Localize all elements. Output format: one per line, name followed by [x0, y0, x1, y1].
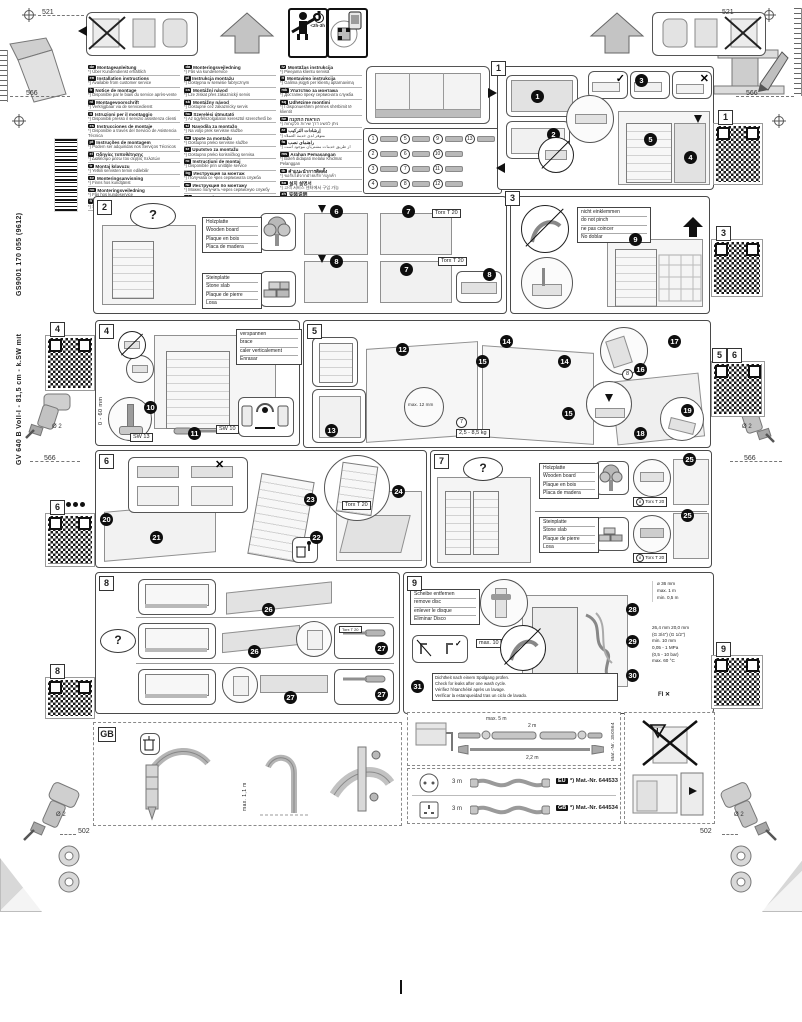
part-item: 2 — [368, 149, 400, 159]
question-cloud: ? — [100, 629, 136, 653]
language-list-col1: deMontageanleitung*) Über Kundendienst e… — [88, 64, 180, 211]
registration-crosshair — [772, 114, 786, 128]
language-note: *) Dostępna w serwisie fabrycznym — [184, 81, 276, 86]
step-dot — [66, 502, 71, 507]
part-item: 3 — [368, 164, 400, 174]
language-entry: daMonteringsvejledning*) Fås via kundese… — [184, 64, 276, 76]
part-item: 6 — [400, 149, 432, 159]
step-3: 3 — [635, 74, 648, 87]
decor-door-mount-sketch — [631, 769, 707, 819]
brace-label: verspannenbracecaler verticalementEnrasa… — [236, 329, 302, 365]
language-note: *) Na voljo prek servisne službe — [184, 129, 276, 134]
check-icon: ✓ — [616, 72, 625, 85]
rcd-label: FI ✕ — [658, 691, 670, 698]
part-number: 9 — [433, 134, 443, 144]
region-badge-eu: EU — [556, 778, 568, 784]
language-note: *) ניתן להשיג דרך שירות הלקוחות — [280, 122, 362, 127]
step-12: 12 — [396, 343, 409, 356]
height-range: 0 - 60 mm — [98, 379, 104, 425]
step-11: 11 — [188, 427, 201, 440]
language-list-col2: daMonteringsvejledning*) Fås via kundese… — [184, 64, 276, 218]
part-number: 13 — [465, 134, 475, 144]
panel-3: 3 nicht einklemmendo not pinchne pas coi… — [510, 196, 710, 314]
step-15: 15 — [476, 355, 489, 368]
language-entry: elΟδηγίες τοποθέτησης*) Διαθέσιμο μέσω τ… — [88, 152, 180, 164]
drill-dia-bottom-right: Ø 2 — [734, 812, 744, 818]
qr-label-8: 8 — [50, 664, 65, 679]
gb-hose-height: max. 1,1 m — [242, 759, 248, 811]
panel-1: 1 1 2 ✓ 3 ✕ 5 4 ! — [497, 66, 714, 190]
part-item: 13 — [465, 134, 497, 144]
part-hardware-icon — [380, 136, 398, 142]
step-22: 22 — [310, 531, 323, 544]
stone-slab-label: SteinplatteStone slabPlaque de pierreLos… — [202, 273, 262, 309]
installer-time-box: <2h-3h — [288, 8, 328, 58]
torx-tag: Torx T 20 — [342, 501, 371, 510]
cross-icon: ✕ — [215, 458, 224, 471]
step-15b: 15 — [562, 407, 575, 420]
gb-label: GB — [98, 727, 116, 742]
part-number: 2 — [368, 149, 378, 159]
stone-icon-box — [260, 271, 296, 307]
part-item: 12 — [433, 179, 465, 189]
step-16: 16 — [634, 363, 647, 376]
part-number: 1 — [368, 134, 378, 144]
hose-clip-pipe-sketch — [330, 739, 394, 821]
dimension-502-left: 502 — [78, 828, 90, 835]
language-note: *) Az ügyfélszolgálaton keresztül szerez… — [184, 117, 276, 122]
part-item: 4 — [368, 179, 400, 189]
language-entry: svMonteringsanvisning*) Finns hos kundtj… — [88, 175, 180, 187]
dimension-502-right: 502 — [700, 828, 712, 835]
step-27: 27 — [375, 642, 388, 655]
qr-label-3: 3 — [716, 226, 731, 241]
language-note: *) Достапно преку сервисната служба — [280, 93, 362, 98]
language-entry: srUputstvo za montažu*) Dostupno preko k… — [184, 147, 276, 159]
qr-label-6b: 6 — [727, 348, 742, 363]
language-entry: ptInstruções de montagem*) Podem ser adq… — [88, 140, 180, 152]
language-note: *) Disponible par le biais du service ap… — [88, 93, 180, 98]
language-note: *) ขอรับได้จากฝ่ายบริการลูกค้า — [280, 174, 362, 179]
crossed-warning-sketch: ! — [635, 719, 701, 767]
leak-check-box: 31 Dichtheit nach einem Spülgang prüfen.… — [432, 673, 618, 701]
qr-code-5-6 — [712, 362, 764, 416]
language-entry: arإرشادات التركيب*) متوفر لدى خدمة العمل… — [280, 128, 362, 140]
tree-icon — [261, 214, 293, 248]
cabinet-front-preview — [366, 66, 490, 124]
qr-code-3 — [712, 240, 762, 296]
part-number: 4 — [368, 179, 378, 189]
language-entry: huSzerelési útmutató*) Az ügyfélszolgála… — [184, 111, 276, 123]
language-note: *) Available from customer service — [88, 81, 180, 86]
cord2-mat-nr: *) Mat.-Nr. 644534 — [570, 805, 618, 811]
registration-tick — [400, 980, 402, 994]
bracket-compare-box: ✕ — [128, 457, 248, 513]
dimension-566-left: 566 — [26, 90, 38, 97]
part-item: 11 — [433, 164, 465, 174]
language-entry: hrUpute za montažu*) Dostupno preko serv… — [184, 135, 276, 147]
step-6: 6 — [330, 205, 343, 218]
language-note: *) Можно получить через сервисную службу — [184, 188, 276, 193]
step-26: 26 — [262, 603, 275, 616]
language-note: *) Podem ser adquiridas nos Serviços Téc… — [88, 145, 180, 150]
region-badge-gb: GB — [556, 805, 568, 811]
cord1-mat-nr: *) Mat.-Nr. 644533 — [570, 778, 618, 784]
language-entry: nlMontagevoorschrift*) Verkrijgbaar via … — [88, 100, 180, 112]
question-cloud: ? — [463, 457, 503, 481]
remove-disc-label: Scheibe entfernenremove discenlever le d… — [410, 589, 480, 625]
power-cord-sketch — [470, 800, 550, 820]
arrow-up-icon — [588, 10, 646, 56]
step-30: 30 — [626, 669, 639, 682]
step-26b: 26 — [248, 645, 261, 658]
part-hardware-icon — [445, 181, 463, 187]
power-cord-sketch — [470, 773, 550, 793]
spirit-level-phone-icon — [239, 398, 291, 434]
torx-part-tag: 8 Torx T 20 — [633, 497, 667, 507]
part-hardware-icon — [412, 166, 430, 172]
schuko-socket-icon — [418, 773, 440, 793]
language-entry: skMontážny návod*) Dostupné cez zákazníc… — [184, 100, 276, 112]
qr-label-5: 5 — [712, 348, 727, 363]
part-hardware-icon — [445, 151, 463, 157]
part-hardware-icon — [445, 136, 463, 142]
part-item: 9 — [433, 134, 465, 144]
language-entry: faراهنمای نصب*) از طریق خدمات مشتریان مو… — [280, 140, 362, 152]
timer-icon — [313, 11, 325, 23]
parts-list: 12345678910111213 — [363, 128, 502, 194]
language-note: *) Disponible a través del Servicio de A… — [88, 129, 180, 138]
svg-text:✓: ✓ — [455, 639, 462, 648]
part-hardware-icon — [412, 136, 430, 142]
language-note: *) Yetkili servisten temin edilebilir — [88, 169, 180, 174]
step-1: 1 — [531, 90, 544, 103]
step-9: 9 — [629, 233, 642, 246]
language-note: *) Fås via kundeservice — [184, 70, 276, 75]
hose-couplers-sketch — [458, 729, 604, 741]
part-number: 8 — [400, 179, 410, 189]
page-curl — [0, 858, 42, 912]
step-dot — [73, 502, 78, 507]
dimension-566-left-mid: 566 — [44, 455, 56, 462]
panel-2-label: 2 — [97, 200, 112, 215]
step-7: 7 — [402, 205, 415, 218]
language-note: *) متوفر لدى خدمة العملاء — [280, 134, 362, 139]
language-entry: enInstallation instructions*) Available … — [88, 76, 180, 88]
qr-code-8 — [46, 678, 94, 718]
tap-open-closed-icon: ✓ — [413, 636, 465, 660]
part-hardware-icon — [380, 166, 398, 172]
part-hardware-icon — [380, 151, 398, 157]
part-ref-8: 8 — [622, 369, 633, 380]
question-cloud: ? — [130, 203, 176, 229]
tree-icon — [596, 462, 626, 492]
step-8b: 8 — [483, 268, 496, 281]
time-estimate: <2h-3h — [310, 23, 325, 28]
drain-hose-extension-box: max. 5 m 2 m 2,2 m Mat.-Nr. 350564 — [407, 712, 621, 766]
qr-label-6: 6 — [50, 500, 65, 515]
part-hardware-icon — [477, 136, 495, 142]
language-note: *) Finns hos kundtjänst — [88, 181, 180, 186]
language-entry: lvMontāžas instrukcija*) Pieejama klient… — [280, 64, 362, 76]
gap-dim: max. 12 mm — [408, 402, 433, 407]
hoses-cables-sketch — [580, 609, 620, 683]
hose-len2-dim: 2,2 m — [526, 755, 539, 761]
language-note: *) Dostupno preko korisničkog servisa — [184, 153, 276, 158]
step-27b: 27 — [284, 691, 297, 704]
phone-qr-scan-box — [327, 8, 368, 58]
tap-check-box: ✓ — [412, 635, 468, 663]
panel-9: 9 Scheibe entfernenremove discenlever le… — [403, 572, 714, 714]
hose-long-sketch — [458, 745, 604, 755]
drill-dia-left-mid: Ø 2 — [52, 424, 62, 430]
part-number: 3 — [368, 164, 378, 174]
panel-7-label: 7 — [434, 454, 449, 469]
pliers-cut-sketch — [124, 737, 214, 821]
trash-icon — [141, 734, 157, 752]
panel-8-label: 8 — [99, 576, 114, 591]
gb-tap-panel: GB max. 1,1 m — [93, 722, 402, 826]
language-entry: msArahan Pemasangan*) Boleh didapati mel… — [280, 152, 362, 169]
hinge-rings-icon — [724, 844, 758, 896]
part-item: 7 — [400, 164, 432, 174]
no-door-panel-warning-box — [86, 12, 198, 56]
language-note: *) از طریق خدمات مشتریان موجود است — [280, 145, 362, 150]
qr-code-9 — [712, 656, 762, 708]
language-entry: thคำแนะนำการติดตั้ง*) ขอรับได้จากฝ่ายบริ… — [280, 168, 362, 180]
language-note: *) Pieejama klientu servisā — [280, 70, 362, 75]
panel-6-label: 6 — [99, 454, 114, 469]
language-note: *) I disponueshëm përmes shërbimit të kl… — [280, 105, 362, 114]
language-note: *) 고객 서비스 센터에서 구입 가능 — [280, 186, 362, 191]
language-note: *) Über Kundendienst erhältlich — [88, 70, 180, 75]
water-connection-dims: 26,4 mm 20,0 mm (G 3/4") (G 1/2") min. 1… — [652, 625, 710, 665]
dimension-566-right-mid: 566 — [744, 455, 756, 462]
drill-dia-right-mid: Ø 2 — [742, 424, 752, 430]
part-item: 5 — [400, 134, 432, 144]
panel-4: 4 verspannenbracecaler verticalementEnra… — [95, 320, 300, 446]
part-number: 12 — [433, 179, 443, 189]
part-item: 1 — [368, 134, 400, 144]
language-list-col3: lvMontāžas instrukcija*) Pieejama klient… — [280, 64, 362, 216]
language-note: *) Διαθέσιμο μέσω του σέρβις πελατών — [88, 157, 180, 162]
cord2-length: 3 m — [452, 806, 462, 812]
step-14: 14 — [500, 335, 513, 348]
no-door-panel-warning-box — [652, 12, 766, 56]
drill-dia-bottom-left: Ø 2 — [56, 812, 66, 818]
step-5: 5 — [644, 133, 657, 146]
crossed-panel-icon — [653, 13, 763, 53]
language-entry: ltMontavimo instrukcija*) Galima įsigyti… — [280, 76, 362, 88]
step-18: 18 — [634, 427, 647, 440]
step-13: 13 — [325, 424, 338, 437]
part-number: 7 — [400, 164, 410, 174]
step-24: 24 — [392, 485, 405, 498]
registration-crosshair — [22, 8, 36, 22]
language-entry: mkУпатство за монтажа*) Достапно преку с… — [280, 88, 362, 100]
tree-icon-box — [260, 213, 296, 251]
registration-crosshair — [12, 114, 26, 128]
no-pinch-hose-icon — [521, 205, 569, 253]
part-number: 5 — [400, 134, 410, 144]
part-number: 10 — [433, 149, 443, 159]
door-panel-box: ! — [624, 712, 715, 824]
panel-1-label: 1 — [491, 61, 506, 76]
step-14b: 14 — [558, 355, 571, 368]
step-20: 20 — [100, 513, 113, 526]
stone-bricks-icon — [596, 518, 626, 548]
language-note: *) Dostupno preko servisne službe — [184, 141, 276, 146]
step-29: 29 — [626, 635, 639, 648]
step-10: 10 — [144, 401, 157, 414]
part-number: 6 — [400, 149, 410, 159]
page-curl — [762, 858, 802, 912]
torx-part-tag: 8 Torx T 20 — [633, 553, 667, 563]
part-item: 8 — [400, 179, 432, 189]
language-note: *) Disponibili presso il servizio assist… — [88, 117, 180, 122]
arrow-up-icon — [218, 10, 276, 56]
step-dot — [80, 502, 85, 507]
cross-icon: ✕ — [700, 72, 709, 85]
language-entry: deMontageanleitung*) Über Kundendienst e… — [88, 64, 180, 76]
language-entry: bgИнструкция за монтаж*) Получава се чре… — [184, 171, 276, 183]
language-entry: slNavodila za montažo*) Na voljo prek se… — [184, 123, 276, 135]
hinge-rings-icon — [52, 844, 86, 896]
drill-icon-bottom-left — [20, 782, 84, 852]
language-note: *) Disponibile prin unităţile service — [184, 164, 276, 169]
order-number-vertical: GS9001 170 055 (9612) — [16, 196, 23, 296]
drain-dims-block: ø 36 mm max. 1 m min. 0,5 m — [652, 581, 713, 602]
panel-6: 6 ✕ 20 21 23 22 24 Torx T 20 — [95, 450, 427, 568]
power-cord-box: 3 m EU *) Mat.-Nr. 644533 3 m GB *) Mat.… — [407, 768, 621, 824]
wooden-board-label: HolzplatteWooden boardPlaque en boisPlac… — [202, 217, 262, 253]
part-hardware-icon — [412, 181, 430, 187]
language-entry: ruИнструкция по монтажу*) Можно получить… — [184, 182, 276, 194]
language-entry: sqUdhëzime montimi*) I disponueshëm përm… — [280, 100, 362, 117]
language-note: *) Получава се чрез сервизната служба — [184, 176, 276, 181]
torx-tag: Torx T 20 — [339, 626, 362, 633]
language-entry: csMontážní návod*) Lze získat přes zákaz… — [184, 88, 276, 100]
panel-3-label: 3 — [505, 191, 520, 206]
step-27c: 27 — [375, 688, 388, 701]
hose-mat-nr: Mat.-Nr. 350564 — [610, 719, 615, 761]
torx-tag: Torx T 20 — [438, 257, 467, 266]
qr-label-4: 4 — [50, 322, 65, 337]
screwdriver-icon — [335, 670, 391, 688]
language-note: *) Lze získat přes zákaznický servis — [184, 93, 276, 98]
language-entry: ko설치 설명서*) 고객 서비스 센터에서 구입 가능 — [280, 180, 362, 192]
hose-standpipe-sketch — [254, 743, 314, 819]
dimension-521-right: 521 — [722, 9, 734, 16]
part-ref-7: 7 — [456, 417, 467, 428]
step-21: 21 — [150, 531, 163, 544]
language-entry: trMontaj kılavuzu*) Yetkili servisten te… — [88, 163, 180, 175]
step-17: 17 — [668, 335, 681, 348]
panel-9-label: 9 — [407, 576, 422, 591]
level-check-box — [238, 397, 294, 437]
qr-code-6 — [46, 514, 94, 566]
language-note: *) Verkrijgbaar via de servicedienst — [88, 105, 180, 110]
panel-7: 7 ? HolzplatteWooden boardPlaque en bois… — [430, 450, 712, 568]
step-31: 31 — [411, 680, 424, 693]
part-hardware-icon — [445, 166, 463, 172]
ruler-strip — [794, 8, 802, 96]
step-25: 25 — [683, 453, 696, 466]
phone-scan-qr-icon — [329, 10, 364, 52]
panel-4-label: 4 — [99, 324, 114, 339]
step-19: 19 — [681, 404, 694, 417]
drill-icon-left — [18, 388, 74, 452]
qr-code-4 — [46, 336, 94, 390]
language-entry: heהוראות התקנה*) ניתן להשיג דרך שירות הל… — [280, 116, 362, 128]
language-entry: roInstrucţiuni de montaj*) Disponibile p… — [184, 159, 276, 171]
cord1-length: 3 m — [452, 779, 462, 785]
panel-5-label: 5 — [307, 324, 322, 339]
uk-socket-icon — [418, 800, 440, 820]
panel-2: 2 ? HolzplatteWooden boardPlaque en bois… — [93, 196, 507, 314]
part-item: 10 — [433, 149, 465, 159]
wooden-board-label: HolzplatteWooden boardPlaque en boisPlac… — [539, 463, 599, 499]
barcode — [54, 138, 78, 212]
language-entry: plInstrukcja montażu*) Dostępna w serwis… — [184, 76, 276, 88]
language-entry: itIstruzioni per il montaggio*) Disponib… — [88, 111, 180, 123]
qr-label-1: 1 — [718, 110, 733, 125]
step-7b: 7 — [400, 263, 413, 276]
step-25b: 25 — [681, 509, 694, 522]
torx-tag: Torx T 20 — [432, 209, 461, 218]
stone-slab-label: SteinplatteStone slabPlaque de pierreLos… — [539, 517, 599, 553]
qr-label-9: 9 — [716, 642, 731, 657]
language-note: *) Galima įsigyti per klientų aptarnavim… — [280, 81, 362, 86]
panel-8: 8 ? 26 26 Torx T 2027 27 27 — [95, 572, 400, 714]
part-hardware-icon — [412, 151, 430, 157]
step-28: 28 — [626, 603, 639, 616]
part-number: 11 — [433, 164, 443, 174]
language-note: *) Boleh didapati melalui Khidmat Pelang… — [280, 157, 362, 166]
panel-5: 5 13 12 max. 12 mm 2,5 - 8,5 kg 14 15 14… — [303, 320, 711, 448]
language-note: *) Dostupné cez zákaznícky servis — [184, 105, 276, 110]
step-8: 8 — [330, 255, 343, 268]
dimension-566-right: 566 — [746, 90, 758, 97]
wire-basket-sketch — [657, 253, 703, 303]
drill-icon-bottom-right — [716, 782, 780, 852]
hose-total-dim: max. 5 m — [486, 716, 507, 722]
sw13-tag: SW 13 — [130, 433, 153, 442]
weight-tag: 2,5 - 8,5 kg — [456, 429, 490, 438]
step-4: 4 — [684, 151, 697, 164]
language-entry: esInstrucciones de montaje*) Disponible … — [88, 123, 180, 140]
step-23: 23 — [304, 493, 317, 506]
installation-sheet: 521 521 <2h-3h 566 GS9001 170 055 (9612)… — [0, 0, 802, 1022]
part-hardware-icon — [380, 181, 398, 187]
dimension-521-left: 521 — [42, 9, 54, 16]
language-entry: frNotice de montage*) Disponible par le … — [88, 88, 180, 100]
crossed-panel-icon — [87, 13, 195, 53]
hose-len1-dim: 2 m — [528, 723, 536, 729]
arrow-up-icon — [681, 215, 705, 239]
sink-unit-sketch — [414, 721, 454, 759]
stone-bricks-icon — [261, 272, 293, 304]
sw10-tag: SW 10 — [216, 425, 239, 434]
qr-code-1 — [714, 124, 762, 184]
